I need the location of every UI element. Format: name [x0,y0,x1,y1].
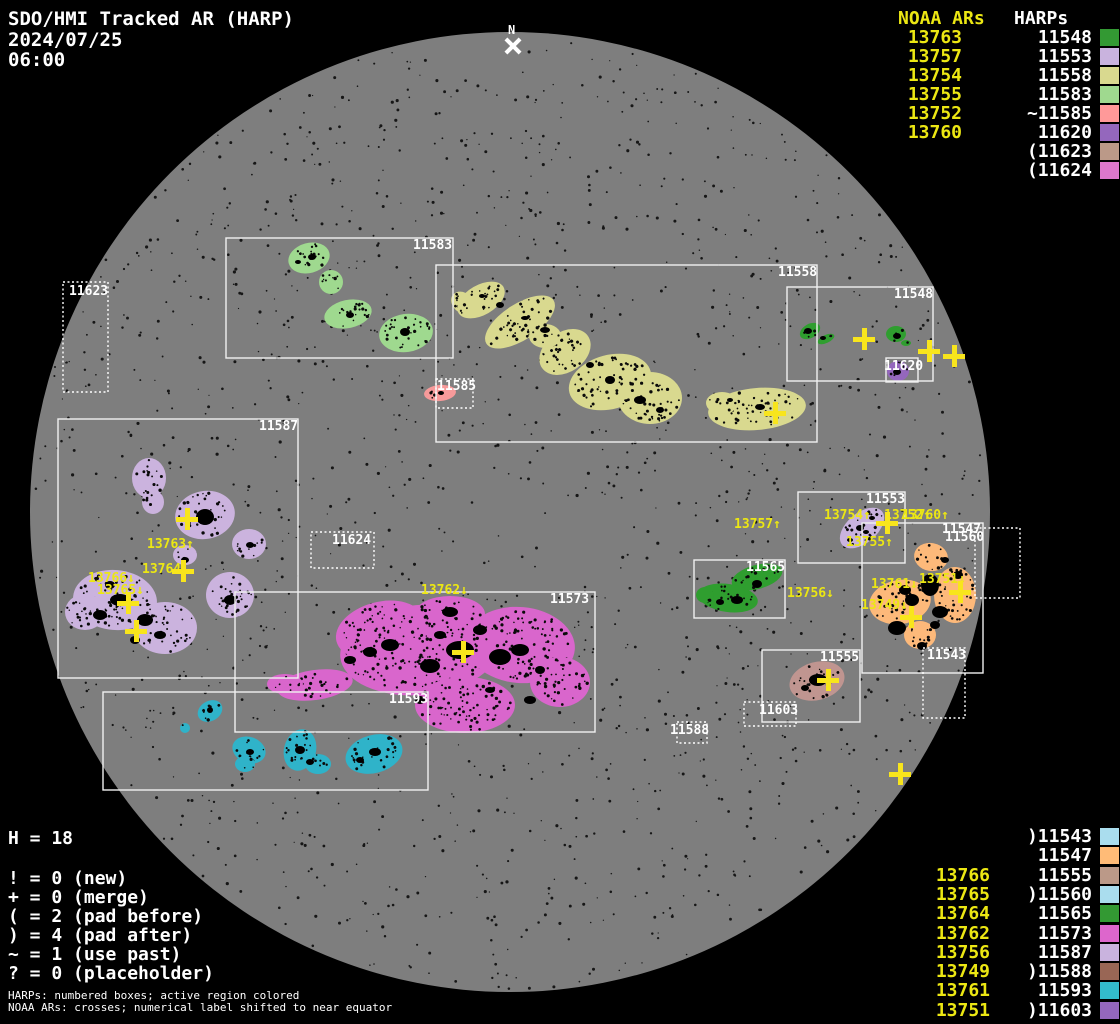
legend-swatch-11555 [1100,867,1119,884]
noaa-cross [172,560,194,582]
legend-noaa-13766: 13766 [926,866,990,885]
noaa-ar-label-13756: 13756↓ [787,587,834,600]
legend-swatch-11547 [1100,847,1119,864]
legend-harp-11547: 11547 [1008,846,1092,865]
harp-label-11623: 11623 [69,285,108,298]
harp-tracking-screen: SDO/HMI Tracked AR (HARP) 2024/07/25 06:… [0,0,1120,1024]
legend-swatch-11548 [1100,29,1119,46]
legend-harp-11548: 11548 [1008,28,1092,47]
legend-swatch-11587 [1100,944,1119,961]
legend-harp-11588: )11588 [1008,962,1092,981]
legend-swatch-11573 [1100,925,1119,942]
legend-noaa-13763: 13763 [898,28,962,47]
noaa-cross [117,592,139,614]
noaa-cross [889,763,911,785]
harp-label-11558: 11558 [778,266,817,279]
noaa-cross [949,581,971,603]
date-label: 2024/07/25 [8,29,122,51]
north-direction-label: N [508,24,515,36]
noaa-ars-header: NOAA ARs [898,9,985,28]
legend-noaa-13765: 13765 [926,885,990,904]
page-title: SDO/HMI Tracked AR (HARP) [8,8,294,30]
status-line-0: ! = 0 (new) [8,869,127,888]
legend-harp-11585: ~11585 [1008,104,1092,123]
legend-harp-11583: 11583 [1008,85,1092,104]
north-x-marker [504,37,522,55]
harp-label-11573: 11573 [550,593,589,606]
legend-noaa-13760: 13760 [898,123,962,142]
legend-swatch-11543 [1100,828,1119,845]
harp-label-11603: 11603 [759,704,798,717]
harp-label-11560: 11560 [945,531,984,544]
legend-harp-11624: (11624 [1008,161,1092,180]
legend-harp-11553: 11553 [1008,47,1092,66]
footnote-noaa: NOAA ARs: crosses; numerical label shift… [8,1002,392,1014]
status-line-4: ~ = 1 (use past) [8,945,181,964]
noaa-ar-label-13754: 13754↑ [824,509,871,522]
harp-label-11583: 11583 [413,239,452,252]
legend-harp-11620: 11620 [1008,123,1092,142]
legend-swatch-11583 [1100,86,1119,103]
legend-harp-11587: 11587 [1008,943,1092,962]
legend-noaa-13749: 13749 [926,962,990,981]
harp-label-11593: 11593 [389,693,428,706]
noaa-cross [876,512,898,534]
noaa-cross [817,669,839,691]
noaa-cross [125,620,147,642]
harp-label-11548: 11548 [894,288,933,301]
noaa-cross [943,345,965,367]
legend-swatch-11624 [1100,162,1119,179]
legend-harp-11555: 11555 [1008,866,1092,885]
legend-harp-11593: 11593 [1008,981,1092,1000]
noaa-ar-label-13757: 13757↑ [734,518,781,531]
legend-swatch-11623 [1100,143,1119,160]
legend-noaa-13764: 13764 [926,904,990,923]
status-line-3: ) = 4 (pad after) [8,926,192,945]
noaa-ar-label-13760: 13760↑ [902,509,949,522]
noaa-ar-label-13761: 13761↓ [871,578,918,591]
noaa-cross [900,606,922,628]
legend-noaa-13754: 13754 [898,66,962,85]
harp-label-11585: 11585 [437,380,476,393]
status-line-2: ( = 2 (pad before) [8,907,203,926]
harp-label-11565: 11565 [746,561,785,574]
noaa-cross [176,508,198,530]
harp-label-11543: 11543 [927,649,966,662]
legend-harp-11558: 11558 [1008,66,1092,85]
legend-harp-11560: )11560 [1008,885,1092,904]
legend-swatch-11603 [1100,1002,1119,1019]
harps-header: HARPs [1014,9,1068,28]
noaa-ar-label-13755: 13755↑ [846,536,893,549]
noaa-ar-label-13762: 13762↓ [421,584,468,597]
legend-harp-11623: (11623 [1008,142,1092,161]
legend-noaa-13756: 13756 [926,943,990,962]
harp-count-line: H = 18 [8,829,73,848]
legend-harp-11543: )11543 [1008,827,1092,846]
status-line-5: ? = 0 (placeholder) [8,964,214,983]
time-label: 06:00 [8,49,65,71]
legend-swatch-11553 [1100,48,1119,65]
legend-noaa-13761: 13761 [926,981,990,1000]
legend-harp-11565: 11565 [1008,904,1092,923]
status-line-1: + = 0 (merge) [8,888,149,907]
legend-noaa-13755: 13755 [898,85,962,104]
legend-noaa-13751: 13751 [926,1001,990,1020]
harp-label-11624: 11624 [332,534,371,547]
legend-swatch-11593 [1100,982,1119,999]
harp-label-11587: 11587 [259,420,298,433]
legend-swatch-11560 [1100,886,1119,903]
legend-harp-11603: )11603 [1008,1001,1092,1020]
noaa-cross [452,641,474,663]
harp-label-11553: 11553 [866,493,905,506]
legend-swatch-11565 [1100,905,1119,922]
legend-noaa-13762: 13762 [926,924,990,943]
noaa-cross [918,340,940,362]
noaa-ar-label-13763: 13763↑ [147,538,194,551]
legend-swatch-11620 [1100,124,1119,141]
legend-noaa-13752: 13752 [898,104,962,123]
legend-swatch-11585 [1100,105,1119,122]
harp-label-11555: 11555 [820,651,859,664]
legend-swatch-11558 [1100,67,1119,84]
legend-noaa-13757: 13757 [898,47,962,66]
legend-harp-11573: 11573 [1008,924,1092,943]
legend-swatch-11588 [1100,963,1119,980]
noaa-cross [853,328,875,350]
harp-label-11588: 11588 [670,724,709,737]
noaa-cross [764,402,786,424]
